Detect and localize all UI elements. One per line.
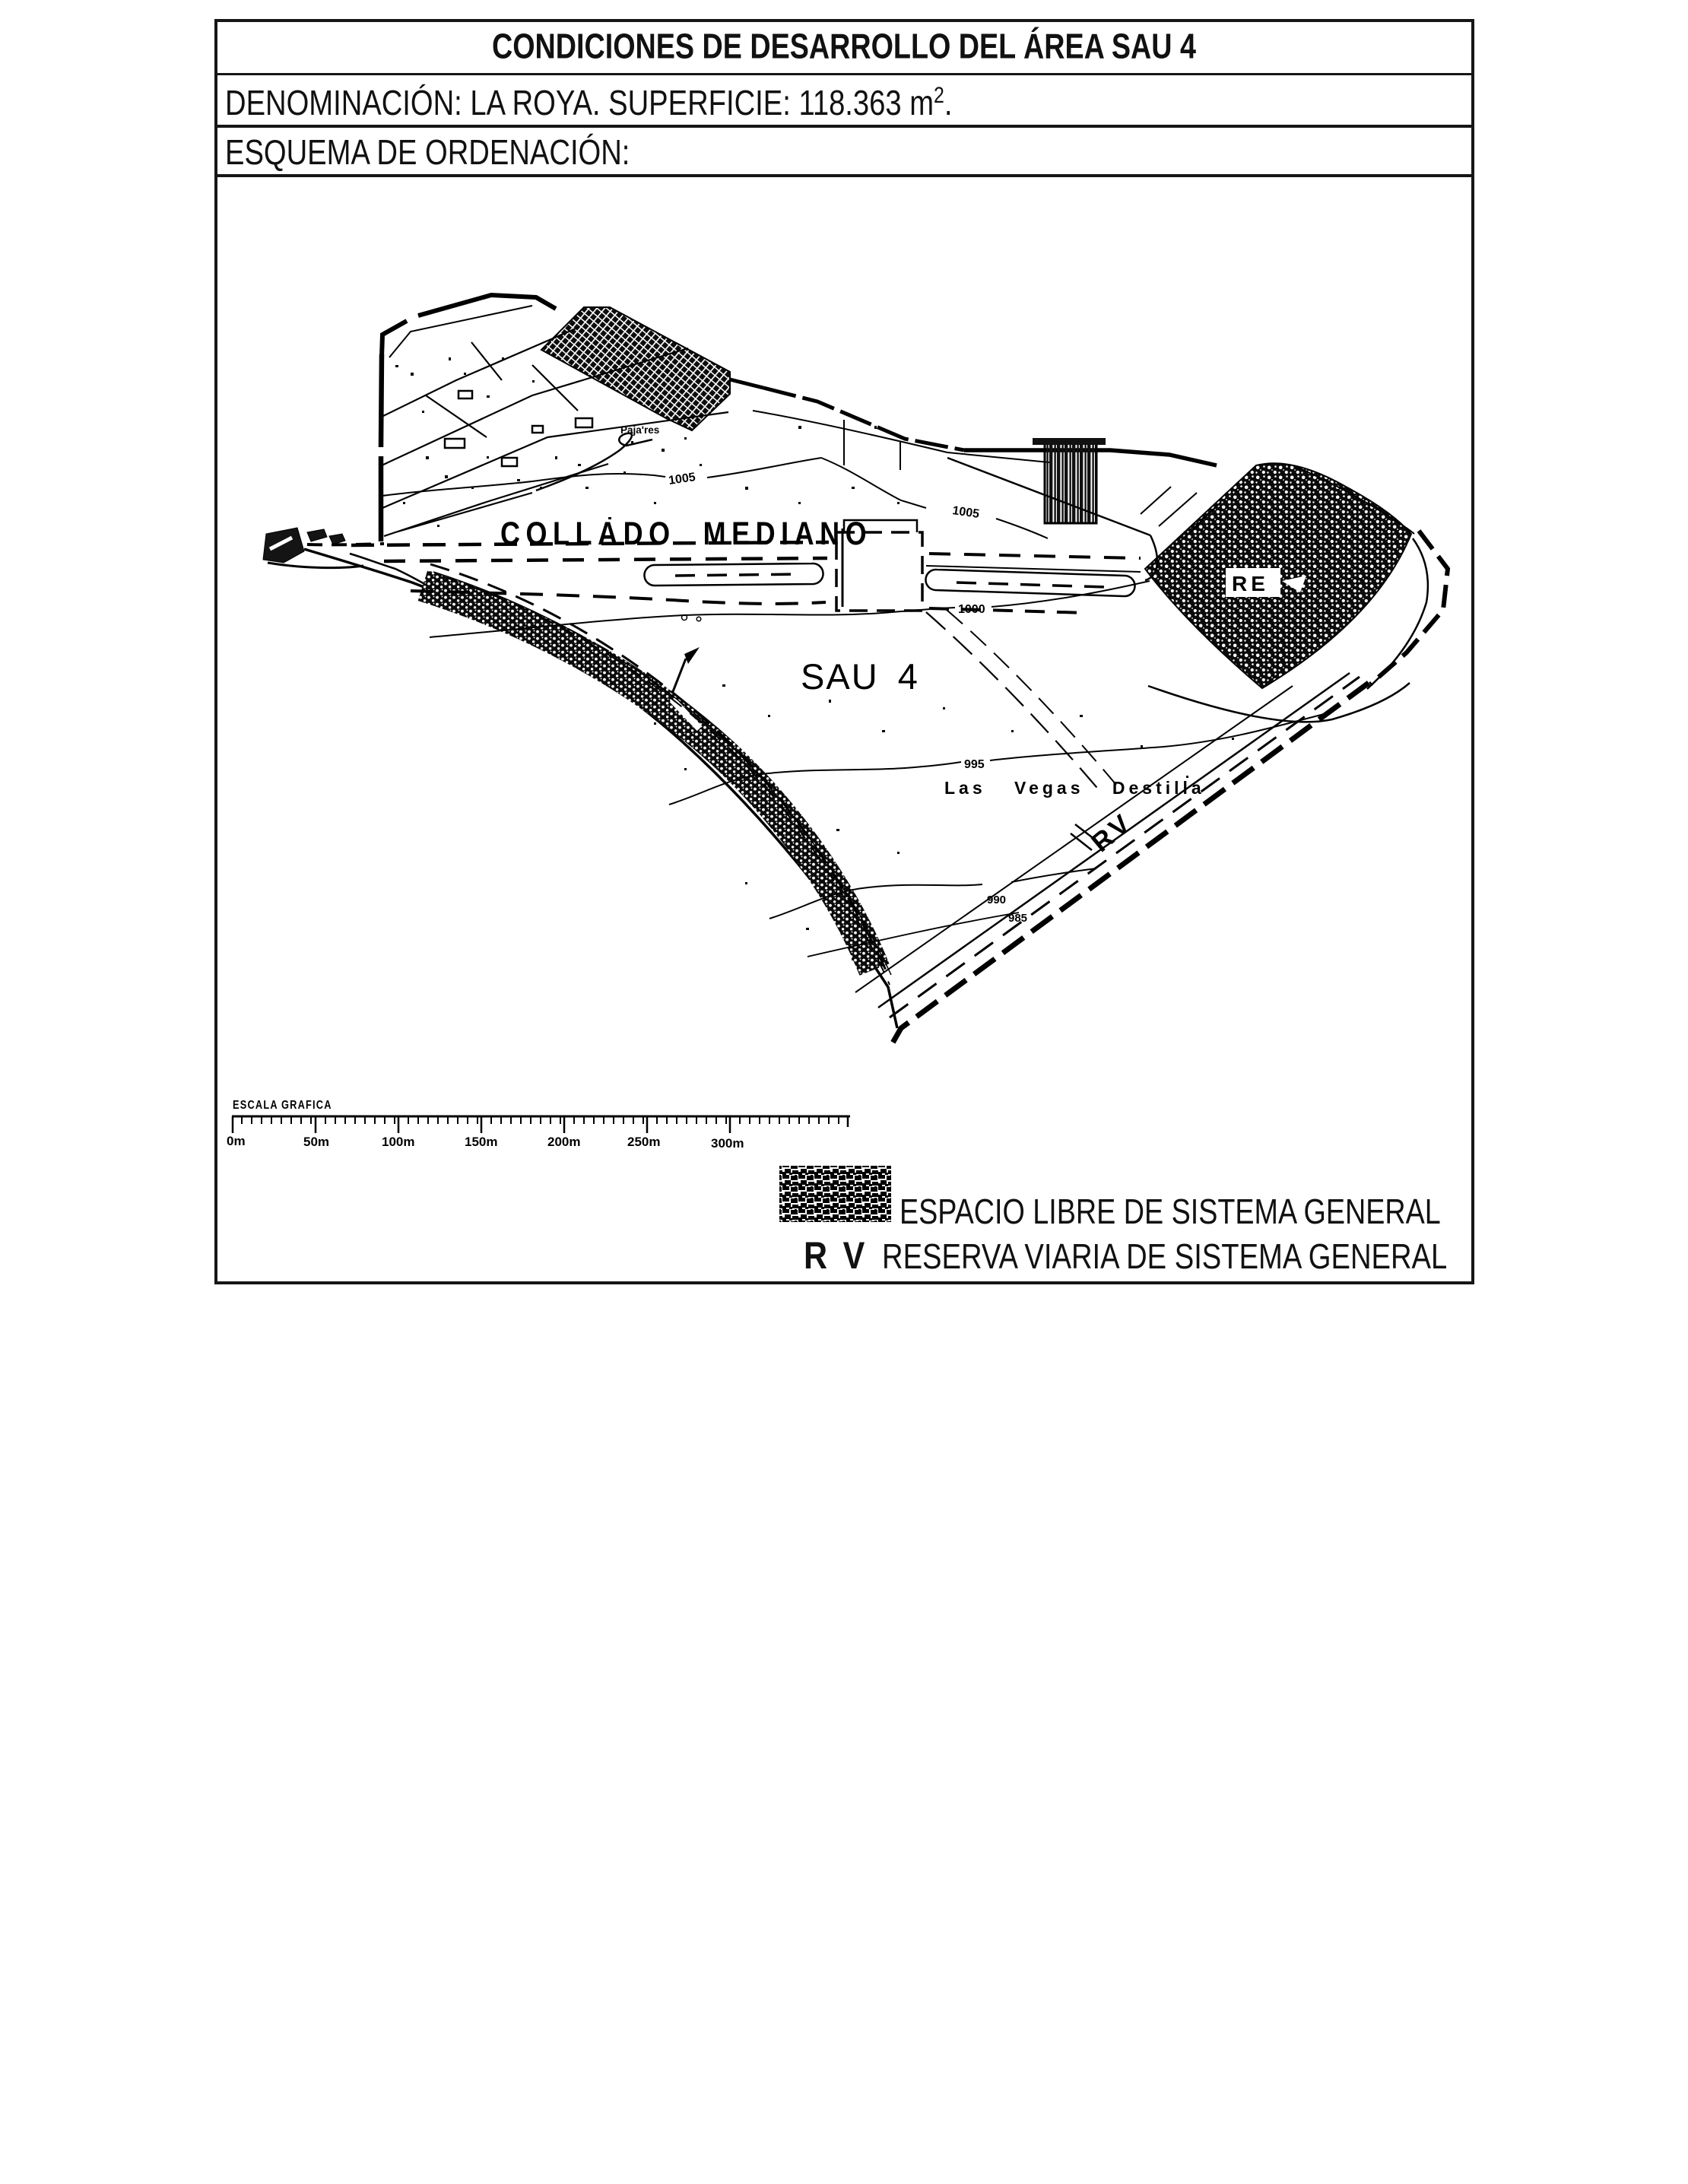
svg-text:0m: 0m	[227, 1134, 246, 1148]
svg-text:1005: 1005	[951, 504, 980, 521]
svg-text:300m: 300m	[711, 1136, 744, 1151]
svg-text:DENOMINACIÓN: LA ROYA. SUPERFI: DENOMINACIÓN: LA ROYA. SUPERFICIE: 118.3…	[225, 82, 952, 122]
svg-text:COLLADO MEDIANO: COLLADO MEDIANO	[500, 516, 872, 552]
svg-text:250m: 250m	[627, 1135, 660, 1149]
svg-text:SAU 4: SAU 4	[801, 656, 919, 697]
svg-text:200m: 200m	[547, 1135, 580, 1149]
svg-text:1005: 1005	[668, 471, 696, 487]
svg-text:ESCALA GRAFICA: ESCALA GRAFICA	[233, 1099, 332, 1113]
svg-text:ESQUEMA DE ORDENACIÓN:: ESQUEMA DE ORDENACIÓN:	[225, 133, 630, 172]
svg-text:995: 995	[964, 758, 985, 771]
svg-text:990: 990	[987, 894, 1006, 906]
svg-text:Paja'res: Paja'res	[620, 424, 659, 436]
svg-text:CONDICIONES DE DESARROLLO DEL: CONDICIONES DE DESARROLLO DEL ÁREA SAU 4	[492, 27, 1197, 65]
svg-text:R V: R V	[804, 1234, 868, 1277]
svg-text:150m: 150m	[465, 1135, 497, 1149]
svg-text:RE: RE	[1232, 572, 1269, 595]
svg-text:50m: 50m	[303, 1135, 329, 1149]
svg-text:ESPACIO LIBRE DE SISTEMA GENER: ESPACIO LIBRE DE SISTEMA GENERAL	[900, 1192, 1441, 1230]
svg-text:100m: 100m	[382, 1135, 414, 1149]
svg-text:Las Vegas Destilla: Las Vegas Destilla	[944, 778, 1205, 798]
svg-text:RV: RV	[1086, 807, 1138, 858]
svg-text:RESERVA VIARIA DE SISTEMA GENE: RESERVA VIARIA DE SISTEMA GENERAL	[882, 1237, 1447, 1276]
